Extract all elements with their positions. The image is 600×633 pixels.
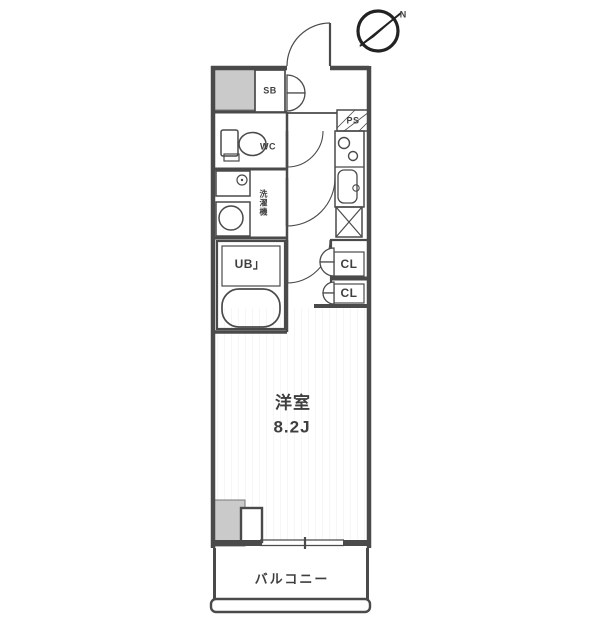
closet-lower-label: CL bbox=[341, 287, 358, 299]
floor-plan-drawing bbox=[0, 0, 600, 633]
shoe-box-doors bbox=[287, 75, 305, 111]
compass bbox=[358, 11, 401, 51]
shoe-box-label: SB bbox=[263, 87, 277, 96]
closet-upper-label: CL bbox=[341, 258, 358, 270]
stove-burner bbox=[339, 138, 350, 149]
main-room-name: 洋室 bbox=[275, 395, 311, 412]
pipe-space-label: PS bbox=[346, 117, 359, 126]
pillar-notch bbox=[241, 508, 262, 542]
stove-burner bbox=[349, 152, 358, 161]
closet-folding-doors bbox=[320, 248, 334, 304]
main-room-size: 8.2J bbox=[273, 419, 310, 436]
kitchen bbox=[335, 110, 369, 237]
toilet-label: WC bbox=[260, 143, 276, 152]
kitchen-sink bbox=[338, 170, 357, 203]
laundry-fixtures bbox=[216, 171, 250, 236]
unit-bath-label: UB」 bbox=[235, 258, 266, 270]
entrance-door bbox=[287, 23, 330, 66]
laundry-label: 洗濯機 bbox=[259, 190, 267, 217]
entry-pillar bbox=[213, 68, 257, 110]
floor-plan-page: SB WC PS 洗濯機 UB」 CL CL 洋室 8.2J バルコニー N bbox=[0, 0, 600, 633]
north-label: N bbox=[400, 11, 407, 20]
balcony-label: バルコニー bbox=[255, 573, 330, 586]
